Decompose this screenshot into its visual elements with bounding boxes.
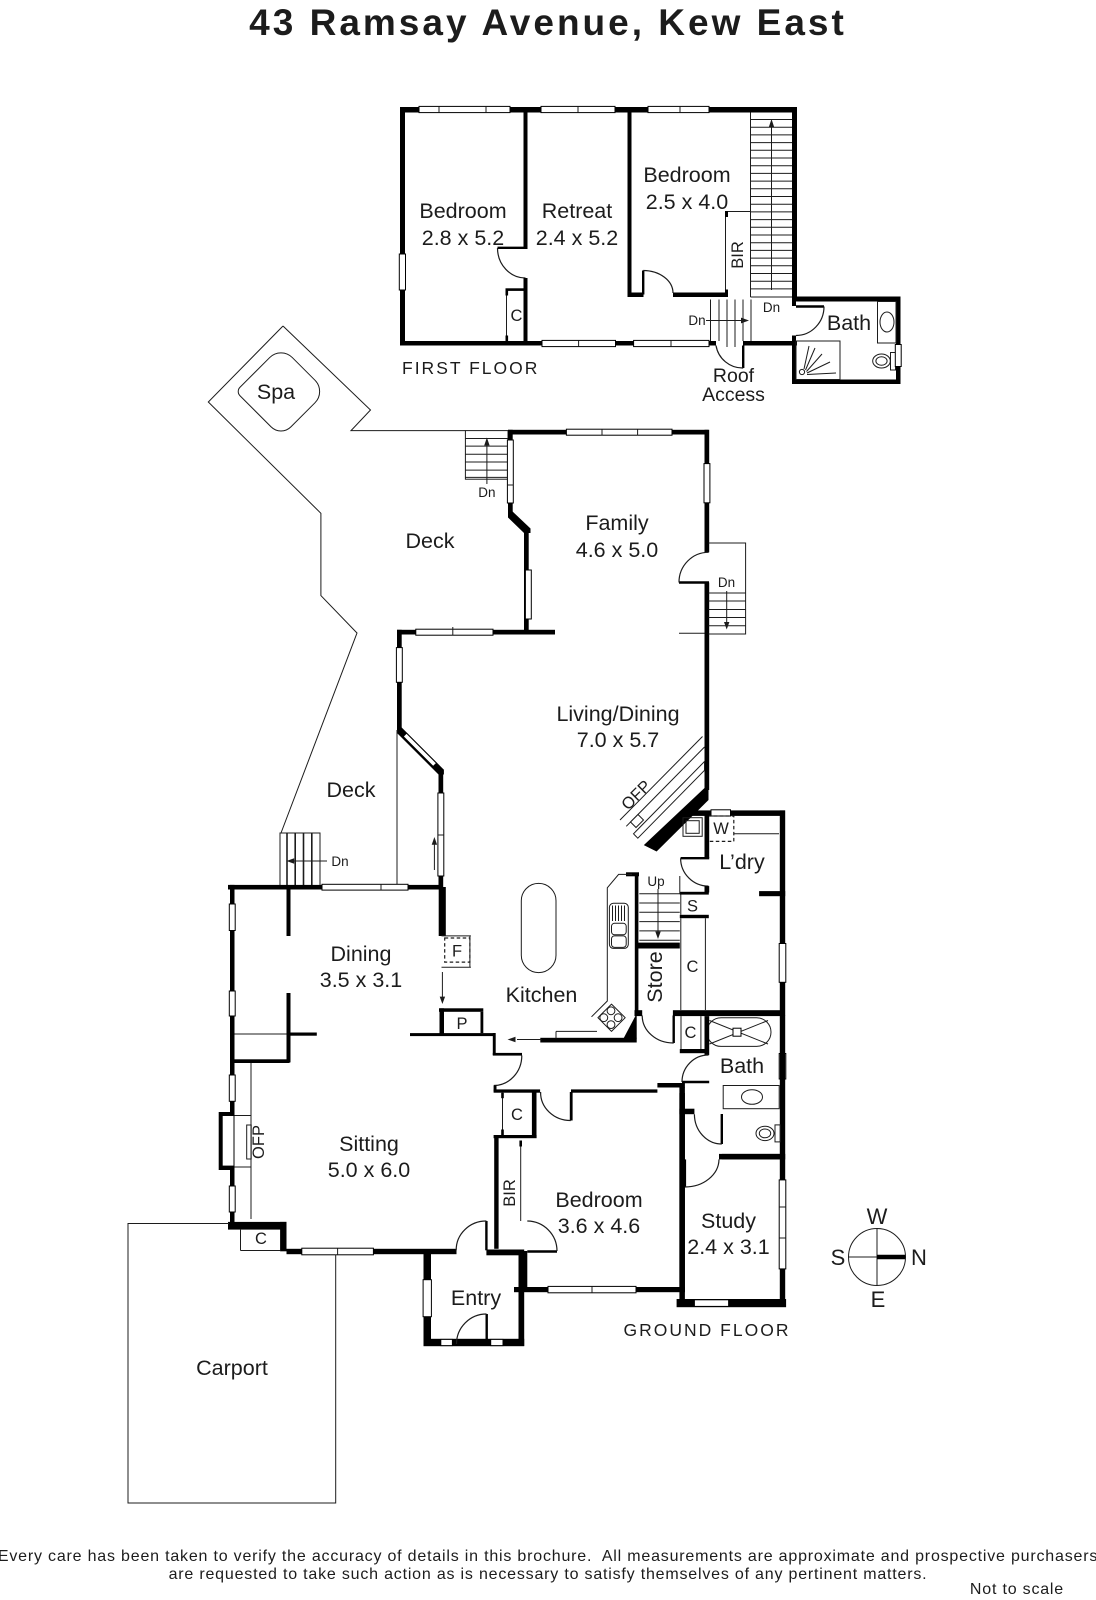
svg-text:C: C bbox=[511, 1106, 523, 1124]
svg-text:C: C bbox=[685, 1024, 697, 1042]
svg-text:Bedroom: Bedroom bbox=[419, 199, 506, 223]
svg-text:C: C bbox=[687, 958, 699, 976]
svg-text:BIR: BIR bbox=[729, 241, 747, 269]
svg-text:Bedroom: Bedroom bbox=[555, 1188, 642, 1212]
svg-text:Kitchen: Kitchen bbox=[506, 983, 578, 1007]
svg-text:N: N bbox=[911, 1245, 927, 1270]
svg-text:Spa: Spa bbox=[257, 380, 295, 404]
svg-text:Study: Study bbox=[701, 1209, 756, 1233]
svg-text:2.5 x 4.0: 2.5 x 4.0 bbox=[646, 190, 729, 214]
svg-text:Sitting: Sitting bbox=[339, 1132, 399, 1156]
svg-text:3.6 x 4.6: 3.6 x 4.6 bbox=[558, 1214, 641, 1238]
svg-text:Dn: Dn bbox=[763, 300, 780, 315]
svg-text:2.8 x 5.2: 2.8 x 5.2 bbox=[422, 226, 504, 250]
svg-text:Every care has been taken to v: Every care has been taken to verify the … bbox=[0, 1548, 1096, 1565]
svg-text:Not to scale: Not to scale bbox=[970, 1581, 1064, 1598]
svg-text:P: P bbox=[456, 1015, 467, 1033]
svg-text:2.4 x 3.1: 2.4 x 3.1 bbox=[687, 1235, 769, 1259]
svg-text:W: W bbox=[713, 820, 729, 838]
svg-text:Store: Store bbox=[643, 951, 667, 1002]
svg-text:Entry: Entry bbox=[451, 1286, 501, 1310]
svg-text:are requested to take such act: are requested to take such action as is … bbox=[169, 1566, 928, 1583]
svg-text:L’dry: L’dry bbox=[719, 850, 765, 874]
svg-text:4.6 x 5.0: 4.6 x 5.0 bbox=[576, 538, 659, 562]
svg-text:GROUND FLOOR: GROUND FLOOR bbox=[624, 1320, 791, 1340]
svg-text:2.4 x 5.2: 2.4 x 5.2 bbox=[536, 226, 618, 250]
svg-text:W: W bbox=[867, 1204, 888, 1229]
svg-text:Access: Access bbox=[702, 384, 765, 406]
svg-text:Up: Up bbox=[647, 874, 664, 889]
svg-text:Bath: Bath bbox=[827, 311, 871, 335]
svg-text:Bedroom: Bedroom bbox=[643, 163, 730, 187]
svg-text:E: E bbox=[871, 1287, 886, 1312]
svg-text:OFP: OFP bbox=[250, 1125, 268, 1159]
svg-text:Dn: Dn bbox=[688, 313, 705, 328]
svg-text:5.0 x 6.0: 5.0 x 6.0 bbox=[328, 1158, 411, 1182]
svg-text:43 Ramsay Avenue, Kew East: 43 Ramsay Avenue, Kew East bbox=[249, 2, 847, 43]
svg-text:C: C bbox=[255, 1230, 267, 1248]
svg-text:3.5 x 3.1: 3.5 x 3.1 bbox=[320, 968, 402, 992]
svg-text:BIR: BIR bbox=[501, 1179, 519, 1207]
svg-text:Dn: Dn bbox=[331, 854, 348, 869]
svg-text:Dining: Dining bbox=[331, 942, 392, 966]
svg-text:7.0 x 5.7: 7.0 x 5.7 bbox=[577, 728, 659, 752]
svg-text:Deck: Deck bbox=[327, 778, 376, 802]
svg-text:Family: Family bbox=[585, 511, 649, 535]
svg-text:Deck: Deck bbox=[406, 529, 455, 553]
svg-text:Bath: Bath bbox=[720, 1054, 764, 1078]
svg-text:FIRST FLOOR: FIRST FLOOR bbox=[402, 358, 539, 378]
svg-text:S: S bbox=[831, 1245, 846, 1270]
svg-text:Retreat: Retreat bbox=[542, 199, 613, 223]
svg-text:Dn: Dn bbox=[718, 575, 735, 590]
svg-text:F: F bbox=[452, 943, 462, 961]
svg-text:Dn: Dn bbox=[478, 485, 495, 500]
svg-text:Carport: Carport bbox=[196, 1356, 268, 1380]
svg-text:S: S bbox=[687, 898, 698, 916]
svg-text:C: C bbox=[511, 307, 523, 325]
svg-text:Living/Dining: Living/Dining bbox=[556, 702, 679, 726]
